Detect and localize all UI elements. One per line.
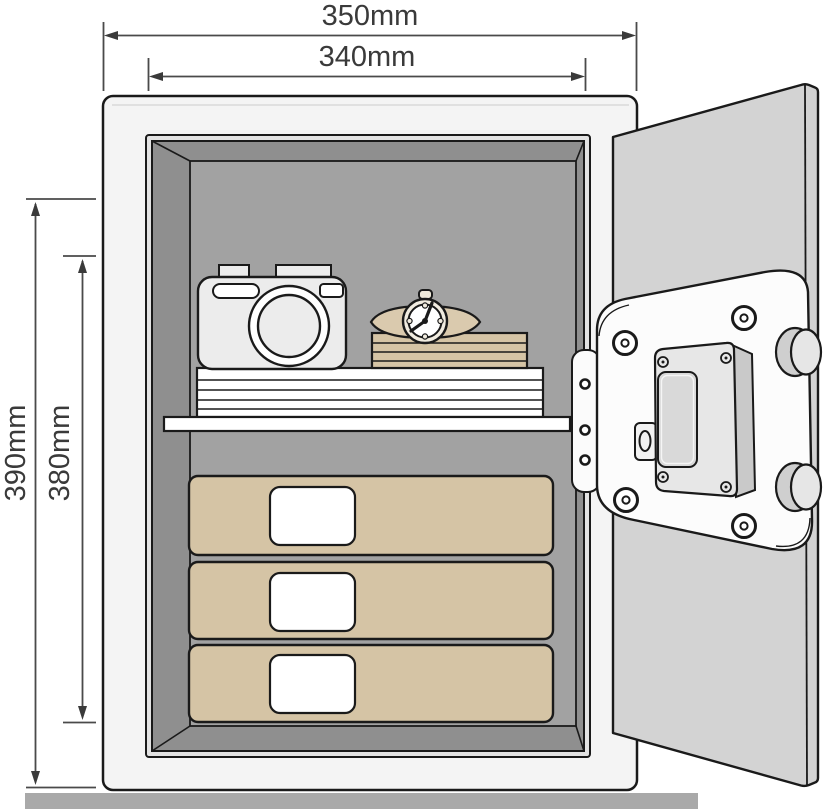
screw-icon bbox=[658, 472, 668, 482]
binder-1 bbox=[189, 476, 553, 555]
lock-panel bbox=[597, 271, 821, 551]
arrowhead-top bbox=[31, 202, 40, 216]
bolt-knob-top bbox=[776, 328, 821, 376]
book-stack bbox=[372, 333, 527, 368]
arrowhead-right bbox=[622, 31, 636, 40]
camera-flash-window bbox=[320, 284, 343, 297]
screw-icon bbox=[614, 332, 637, 355]
arrowhead-top bbox=[78, 259, 87, 273]
inner-width-label: 340mm bbox=[319, 41, 416, 73]
screw-icon bbox=[615, 489, 638, 512]
key-cover bbox=[635, 423, 657, 460]
screw-icon bbox=[721, 353, 731, 363]
arrowhead-left bbox=[104, 31, 118, 40]
outer-width-label: 350mm bbox=[322, 0, 419, 32]
arrowhead-bottom bbox=[31, 771, 40, 785]
keypad-block bbox=[655, 343, 755, 497]
safe-dimension-diagram: 350mm 340mm 390mm 380mm bbox=[0, 0, 825, 809]
screw-icon bbox=[658, 357, 668, 367]
binder-label bbox=[270, 655, 355, 713]
interior-back-wall bbox=[190, 161, 576, 726]
screw-icon bbox=[733, 515, 756, 538]
camera-lens bbox=[258, 295, 320, 357]
watch-hand-pivot bbox=[422, 318, 428, 324]
paper-stack bbox=[197, 368, 543, 417]
inner-height-label: 380mm bbox=[44, 405, 76, 502]
arrowhead-right bbox=[571, 72, 585, 81]
floor-strip bbox=[25, 793, 698, 809]
camera bbox=[198, 265, 346, 369]
bolt-knob-bottom bbox=[776, 463, 821, 511]
camera-viewfinder bbox=[213, 284, 259, 298]
arrowhead-bottom bbox=[78, 706, 87, 720]
arrowhead-left bbox=[149, 72, 163, 81]
binder-label bbox=[270, 573, 355, 631]
binder-3 bbox=[189, 645, 553, 722]
shelf bbox=[164, 417, 570, 431]
screw-icon bbox=[721, 482, 731, 492]
binder-label bbox=[270, 487, 355, 545]
diagram-canvas: 350mm 340mm 390mm 380mm bbox=[0, 0, 825, 809]
binder-stack bbox=[189, 476, 553, 722]
outer-height-label: 390mm bbox=[0, 405, 32, 502]
binder-2 bbox=[189, 562, 553, 639]
screw-icon bbox=[733, 307, 756, 330]
watch-crown bbox=[419, 290, 432, 299]
keypad-recess bbox=[658, 372, 697, 467]
